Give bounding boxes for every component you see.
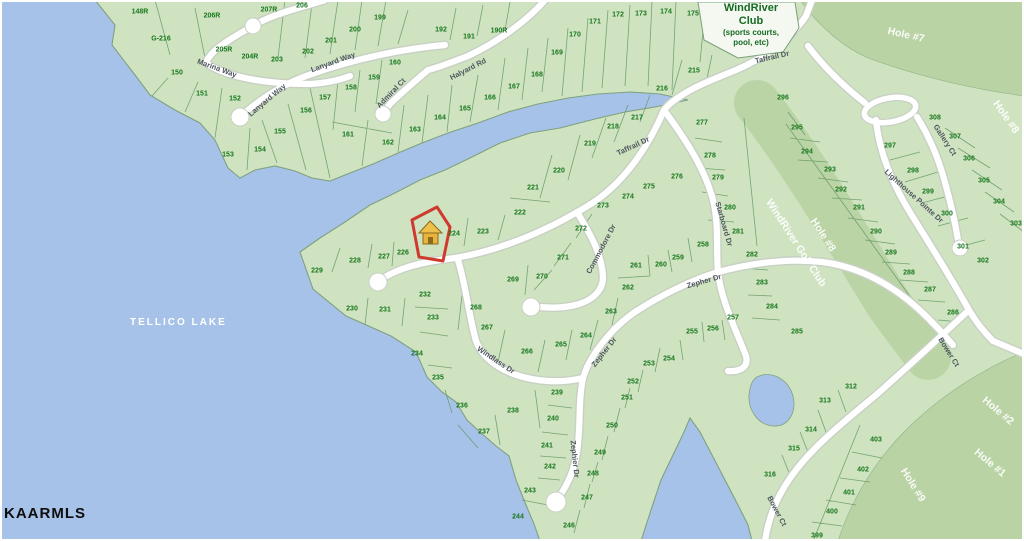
lot-number-label: 169 <box>551 50 563 57</box>
lot-number-label: 269 <box>507 277 519 284</box>
lot-number-label: 238 <box>507 408 519 415</box>
street-name-label: Taffrail Dr <box>754 49 790 66</box>
lot-number-label: 224 <box>448 231 460 238</box>
lot-number-label: 236 <box>456 403 468 410</box>
lot-number-label: 293 <box>824 167 836 174</box>
lot-number-label: 163 <box>409 127 421 134</box>
lot-number-label: 255 <box>686 329 698 336</box>
golf-hole-label: WindRiver Golf Club <box>763 197 829 289</box>
street-name-label: Zepher Dr <box>686 272 723 290</box>
lot-number-label: 298 <box>907 168 919 175</box>
lot-number-label: 315 <box>788 446 800 453</box>
lot-number-label: 285 <box>791 329 803 336</box>
lot-number-label: 401 <box>843 490 855 497</box>
lot-number-label: 279 <box>712 175 724 182</box>
club-sign-line2: Club <box>700 15 802 28</box>
lot-number-label: 284 <box>766 304 778 311</box>
lot-number-label: 304 <box>993 199 1005 206</box>
lot-number-label: 264 <box>580 333 592 340</box>
club-sign-line4: pool, etc) <box>700 38 802 48</box>
lot-number-label: 199 <box>374 15 386 22</box>
lot-number-label: 235 <box>432 375 444 382</box>
lot-number-label: 286 <box>947 310 959 317</box>
lot-number-label: 206R <box>204 13 221 20</box>
lot-number-label: 314 <box>805 427 817 434</box>
lot-number-label: 240 <box>547 416 559 423</box>
lot-number-label: 283 <box>756 280 768 287</box>
lot-number-label: 175 <box>687 11 699 18</box>
lot-number-label: 249 <box>594 450 606 457</box>
lot-number-label: 162 <box>382 140 394 147</box>
lot-number-label: 259 <box>672 255 684 262</box>
lot-number-label: 148R <box>132 9 149 16</box>
lot-number-label: 258 <box>697 242 709 249</box>
lot-number-label: 400 <box>826 509 838 516</box>
lot-number-label: 302 <box>977 258 989 265</box>
lot-number-label: 243 <box>524 488 536 495</box>
street-name-label: Halyard Rd <box>448 56 487 82</box>
lot-number-label: 154 <box>254 147 266 154</box>
lot-number-label: 273 <box>597 203 609 210</box>
lot-number-label: 218 <box>607 124 619 131</box>
lot-number-label: 151 <box>196 91 208 98</box>
lot-number-label: 289 <box>885 250 897 257</box>
lot-number-label: 228 <box>349 258 361 265</box>
lot-number-label: 160 <box>389 60 401 67</box>
lot-number-label: 256 <box>707 326 719 333</box>
lot-number-label: 206 <box>296 3 308 10</box>
lot-number-label: 216 <box>656 86 668 93</box>
lot-number-label: 219 <box>584 141 596 148</box>
lot-number-label: 172 <box>612 12 624 19</box>
lot-number-label: 282 <box>746 252 758 259</box>
lot-number-label: 246 <box>563 523 575 530</box>
lot-number-label: 226 <box>397 250 409 257</box>
lot-number-label: 168 <box>531 72 543 79</box>
lot-number-label: 265 <box>555 342 567 349</box>
lot-number-label: 253 <box>643 361 655 368</box>
lot-number-label: 274 <box>622 194 634 201</box>
street-name-label: Bower Ct <box>936 336 961 369</box>
lot-number-label: 260 <box>655 262 667 269</box>
lot-number-label: 202 <box>302 49 314 56</box>
lot-number-label: 234 <box>411 351 423 358</box>
map-labels-layer: 148RG-216206R207R206205R204R203202201200… <box>0 0 1024 541</box>
lot-number-label: 266 <box>521 349 533 356</box>
golf-hole-label: Hole #8 <box>990 98 1021 135</box>
lot-number-label: 280 <box>724 205 736 212</box>
lot-number-label: 290 <box>870 229 882 236</box>
lot-number-label: 239 <box>551 390 563 397</box>
lot-number-label: 232 <box>419 292 431 299</box>
lot-number-label: 173 <box>635 11 647 18</box>
lot-number-label: 158 <box>345 85 357 92</box>
lot-number-label: 252 <box>627 379 639 386</box>
lot-number-label: 262 <box>622 285 634 292</box>
lot-number-label: 204R <box>242 54 259 61</box>
lot-number-label: 306 <box>963 156 975 163</box>
lot-number-label: 277 <box>696 120 708 127</box>
lot-number-label: 170 <box>569 32 581 39</box>
lot-number-label: 287 <box>924 287 936 294</box>
lot-number-label: 190R <box>491 28 508 35</box>
lot-number-label: 263 <box>605 309 617 316</box>
lot-number-label: 270 <box>536 274 548 281</box>
lot-number-label: 229 <box>311 268 323 275</box>
mls-watermark: KAARMLS <box>4 505 86 522</box>
lot-number-label: 276 <box>671 174 683 181</box>
plat-map: 148RG-216206R207R206205R204R203202201200… <box>0 0 1024 541</box>
lot-number-label: 207R <box>261 7 278 14</box>
lot-number-label: 303 <box>1010 221 1022 228</box>
lot-number-label: 403 <box>870 437 882 444</box>
lot-number-label: 271 <box>557 255 569 262</box>
lot-number-label: 166 <box>484 95 496 102</box>
street-name-label: Zepher Dr <box>590 335 619 368</box>
lot-number-label: 250 <box>606 423 618 430</box>
street-name-label: Lanyard Way <box>246 82 287 119</box>
lot-number-label: 275 <box>643 184 655 191</box>
lot-number-label: 171 <box>589 19 601 26</box>
lot-number-label: 247 <box>581 495 593 502</box>
lot-number-label: 257 <box>727 315 739 322</box>
street-name-label: Zephier Dr <box>569 440 582 478</box>
lot-number-label: 288 <box>903 270 915 277</box>
club-sign-line3: (sports courts, <box>700 28 802 38</box>
lot-number-label: 278 <box>704 153 716 160</box>
lot-number-label: 399 <box>811 533 823 540</box>
lot-number-label: 223 <box>477 229 489 236</box>
lot-number-label: 201 <box>325 38 337 45</box>
lot-number-label: 248 <box>587 471 599 478</box>
lot-number-label: 221 <box>527 185 539 192</box>
lot-number-label: 161 <box>342 132 354 139</box>
street-name-label: Bower Ct <box>765 494 788 527</box>
lot-number-label: 292 <box>835 187 847 194</box>
lot-number-label: 200 <box>349 27 361 34</box>
lot-number-label: G-216 <box>151 36 170 43</box>
street-name-label: Windlass Dr <box>476 344 517 376</box>
lot-number-label: 164 <box>434 115 446 122</box>
lot-number-label: 153 <box>222 152 234 159</box>
golf-hole-label: Hole #8 <box>808 216 838 254</box>
lot-number-label: 254 <box>663 356 675 363</box>
lot-number-label: 296 <box>777 95 789 102</box>
street-name-label: Lighthouse Pointe Dr <box>883 167 945 224</box>
lot-number-label: 402 <box>857 467 869 474</box>
lake-name-label: TELLICO LAKE <box>130 317 227 328</box>
lot-number-label: 241 <box>541 443 553 450</box>
lot-number-label: 157 <box>319 95 331 102</box>
lot-number-label: 316 <box>764 472 776 479</box>
lot-number-label: 297 <box>884 143 896 150</box>
golf-hole-label: Hole #1 <box>972 446 1008 479</box>
lot-number-label: 294 <box>801 149 813 156</box>
lot-number-label: 305 <box>978 178 990 185</box>
lot-number-label: 159 <box>368 75 380 82</box>
lot-number-label: 152 <box>229 96 241 103</box>
lot-number-label: 165 <box>459 106 471 113</box>
lot-number-label: 192 <box>435 27 447 34</box>
lot-number-label: 295 <box>791 125 803 132</box>
lot-number-label: 233 <box>427 315 439 322</box>
lot-number-label: 227 <box>378 254 390 261</box>
street-name-label: Marina Way <box>196 57 238 80</box>
lot-number-label: 167 <box>508 84 520 91</box>
street-name-label: Taffrail Dr <box>615 135 650 158</box>
golf-hole-label: Hole #2 <box>980 394 1016 427</box>
lot-number-label: 268 <box>470 305 482 312</box>
lot-number-label: 150 <box>171 70 183 77</box>
street-name-label: Lanyard Way <box>310 50 357 74</box>
lot-number-label: 237 <box>478 429 490 436</box>
lot-number-label: 299 <box>922 189 934 196</box>
lot-number-label: 307 <box>949 134 961 141</box>
golf-hole-label: Hole #7 <box>886 25 925 45</box>
lot-number-label: 251 <box>621 395 633 402</box>
street-name-label: Commodore Dr <box>584 223 618 275</box>
lot-number-label: 191 <box>463 34 475 41</box>
lot-number-label: 222 <box>514 210 526 217</box>
lot-number-label: 242 <box>544 464 556 471</box>
lot-number-label: 230 <box>346 306 358 313</box>
lot-number-label: 215 <box>688 68 700 75</box>
lot-number-label: 220 <box>553 168 565 175</box>
lot-number-label: 244 <box>512 514 524 521</box>
lot-number-label: 267 <box>481 325 493 332</box>
lot-number-label: 156 <box>300 108 312 115</box>
lot-number-label: 174 <box>660 9 672 16</box>
golf-hole-label: Hole #9 <box>898 466 928 504</box>
lot-number-label: 308 <box>929 115 941 122</box>
lot-number-label: 203 <box>271 57 283 64</box>
lot-number-label: 312 <box>845 384 857 391</box>
lot-number-label: 313 <box>819 398 831 405</box>
lot-number-label: 217 <box>631 115 643 122</box>
lot-number-label: 231 <box>379 307 391 314</box>
club-sign-line1: WindRiver <box>700 2 802 15</box>
lot-number-label: 261 <box>630 263 642 270</box>
lot-number-label: 272 <box>575 226 587 233</box>
club-sign: WindRiver Club (sports courts, pool, etc… <box>700 2 802 47</box>
lot-number-label: 155 <box>274 129 286 136</box>
lot-number-label: 205R <box>216 47 233 54</box>
lot-number-label: 291 <box>853 205 865 212</box>
lot-number-label: 281 <box>732 229 744 236</box>
lot-number-label: 301 <box>957 244 969 251</box>
